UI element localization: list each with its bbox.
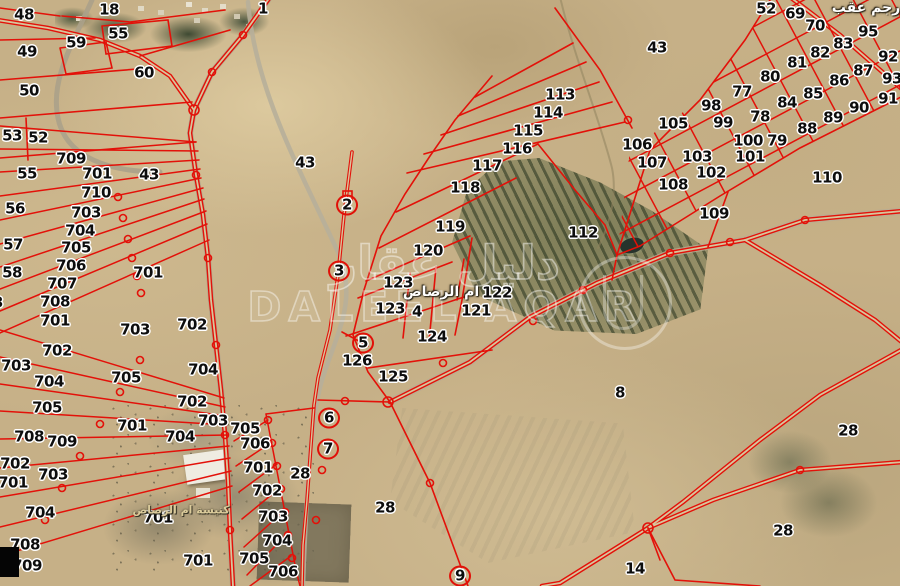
parcel-label: 28 xyxy=(290,467,310,482)
parcel-label: 705 xyxy=(61,241,91,256)
parcel-label: 702 xyxy=(252,484,282,499)
parcel-label: 704 xyxy=(34,375,64,390)
parcel-label: 8 xyxy=(615,386,625,401)
parcel-label: 98 xyxy=(701,99,721,114)
parcel-label: 107 xyxy=(637,156,667,171)
parcel-label: 703 xyxy=(1,359,31,374)
parcel-label: 93 xyxy=(882,72,900,87)
parcel-label: 701 xyxy=(183,554,213,569)
parcel-label: 14 xyxy=(625,562,645,577)
parcel-label: 701 xyxy=(82,167,112,182)
parcel-label: 702 xyxy=(177,318,207,333)
parcel-label: 43 xyxy=(139,168,159,183)
parcel-label: 105 xyxy=(658,117,688,132)
parcel-label: 50 xyxy=(19,84,39,99)
parcel-label: 117 xyxy=(472,159,502,174)
parcel-label: 709 xyxy=(47,435,77,450)
parcel-label: 704 xyxy=(262,534,292,549)
parcel-label: 705 xyxy=(239,552,269,567)
parcel-label: 28 xyxy=(773,524,793,539)
parcel-label: 120 xyxy=(413,244,443,259)
parcel-label: 53 xyxy=(2,129,22,144)
parcel-label: 77 xyxy=(732,85,752,100)
parcel-label: 121 xyxy=(461,304,491,319)
parcel-label: 704 xyxy=(25,506,55,521)
parcel-label: 112 xyxy=(568,226,598,241)
parcel-label: 69 xyxy=(785,7,805,22)
parcel-label: 708 xyxy=(40,295,70,310)
parcel-label: 703 xyxy=(0,296,3,311)
place-name-label: كنيسة ام الرصاص xyxy=(132,504,229,517)
parcel-label: 703 xyxy=(198,414,228,429)
parcel-label: 87 xyxy=(853,64,873,79)
parcel-label: 710 xyxy=(81,186,111,201)
parcel-label: 702 xyxy=(42,344,72,359)
parcel-label: 80 xyxy=(760,70,780,85)
parcel-label: 43 xyxy=(295,156,315,171)
parcel-label: 59 xyxy=(66,36,86,51)
parcel-label: 126 xyxy=(342,354,372,369)
parcel-label: 57 xyxy=(3,238,23,253)
parcel-label: 125 xyxy=(378,370,408,385)
parcel-label: 52 xyxy=(756,2,776,17)
parcel-label: 55 xyxy=(108,27,128,42)
parcel-label: 3 xyxy=(328,261,350,282)
satellite-cadastral-map[interactable]: دليل عقار DALEEL AQAR 481815559496050535… xyxy=(0,0,900,586)
parcel-label: 114 xyxy=(533,106,563,121)
parcel-label: 119 xyxy=(435,220,465,235)
parcel-label: 70 xyxy=(805,19,825,34)
parcel-label: 85 xyxy=(803,87,823,102)
parcel-label: 6 xyxy=(318,408,340,429)
parcel-label: 49 xyxy=(17,45,37,60)
parcel-label: 706 xyxy=(268,565,298,580)
parcel-label: 701 xyxy=(243,461,273,476)
parcel-label: 704 xyxy=(165,430,195,445)
parcel-label: 705 xyxy=(32,401,62,416)
parcel-label: 116 xyxy=(502,142,532,157)
parcel-label: 703 xyxy=(38,468,68,483)
parcel-label: 701 xyxy=(0,476,28,491)
parcel-labels-layer: 4818155594960505352709557017104343567037… xyxy=(0,0,900,586)
parcel-label: 56 xyxy=(5,202,25,217)
parcel-label: 90 xyxy=(849,101,869,116)
parcel-label: 703 xyxy=(71,206,101,221)
parcel-label: 1 xyxy=(258,2,268,17)
parcel-label: 52 xyxy=(28,131,48,146)
parcel-label: 704 xyxy=(188,363,218,378)
parcel-label: 91 xyxy=(878,92,898,107)
parcel-label: 115 xyxy=(513,124,543,139)
parcel-label: 701 xyxy=(40,314,70,329)
parcel-label: 102 xyxy=(696,166,726,181)
parcel-label: 84 xyxy=(777,96,797,111)
parcel-label: 703 xyxy=(258,510,288,525)
parcel-label: 79 xyxy=(767,134,787,149)
parcel-label: 707 xyxy=(47,277,77,292)
parcel-label: 92 xyxy=(878,50,898,65)
parcel-label: 82 xyxy=(810,46,830,61)
parcel-label: 28 xyxy=(375,501,395,516)
parcel-label: 122 xyxy=(482,286,512,301)
parcel-label: 101 xyxy=(735,150,765,165)
parcel-label: 28 xyxy=(838,424,858,439)
parcel-label: 2 xyxy=(336,195,358,216)
parcel-label: 100 xyxy=(733,134,763,149)
parcel-label: 124 xyxy=(417,330,447,345)
parcel-label: 60 xyxy=(134,66,154,81)
parcel-label: 702 xyxy=(0,457,30,472)
parcel-label: 706 xyxy=(240,437,270,452)
parcel-label: 58 xyxy=(2,266,22,281)
parcel-label: 83 xyxy=(833,37,853,52)
parcel-label: 7 xyxy=(317,439,339,460)
parcel-label: 5 xyxy=(352,333,374,354)
parcel-label: 18 xyxy=(99,3,119,18)
parcel-label: 705 xyxy=(111,371,141,386)
parcel-label: 704 xyxy=(65,224,95,239)
parcel-label: 4 xyxy=(412,305,422,320)
parcel-label: 109 xyxy=(699,207,729,222)
parcel-label: 113 xyxy=(545,88,575,103)
parcel-label: 103 xyxy=(682,150,712,165)
parcel-label: 110 xyxy=(812,171,842,186)
parcel-label: 118 xyxy=(450,181,480,196)
parcel-label: 701 xyxy=(133,266,163,281)
parcel-label: 86 xyxy=(829,74,849,89)
parcel-label: 43 xyxy=(647,41,667,56)
parcel-label: 708 xyxy=(14,430,44,445)
place-name-label: رجم عقب xyxy=(832,0,900,16)
parcel-label: 108 xyxy=(658,178,688,193)
redaction-box xyxy=(0,547,19,577)
parcel-label: 106 xyxy=(622,138,652,153)
parcel-label: 81 xyxy=(787,56,807,71)
parcel-label: 701 xyxy=(117,419,147,434)
parcel-label: 88 xyxy=(797,122,817,137)
parcel-label: 89 xyxy=(823,111,843,126)
parcel-label: 9 xyxy=(449,566,471,586)
parcel-label: 48 xyxy=(14,8,34,23)
parcel-label: 55 xyxy=(17,167,37,182)
parcel-label: 99 xyxy=(713,116,733,131)
parcel-label: 95 xyxy=(858,25,878,40)
parcel-label: 123 xyxy=(375,302,405,317)
place-name-label: ام الرصاص xyxy=(403,284,479,300)
parcel-label: 703 xyxy=(120,323,150,338)
parcel-label: 706 xyxy=(56,259,86,274)
parcel-label: 702 xyxy=(177,395,207,410)
parcel-label: 78 xyxy=(750,110,770,125)
